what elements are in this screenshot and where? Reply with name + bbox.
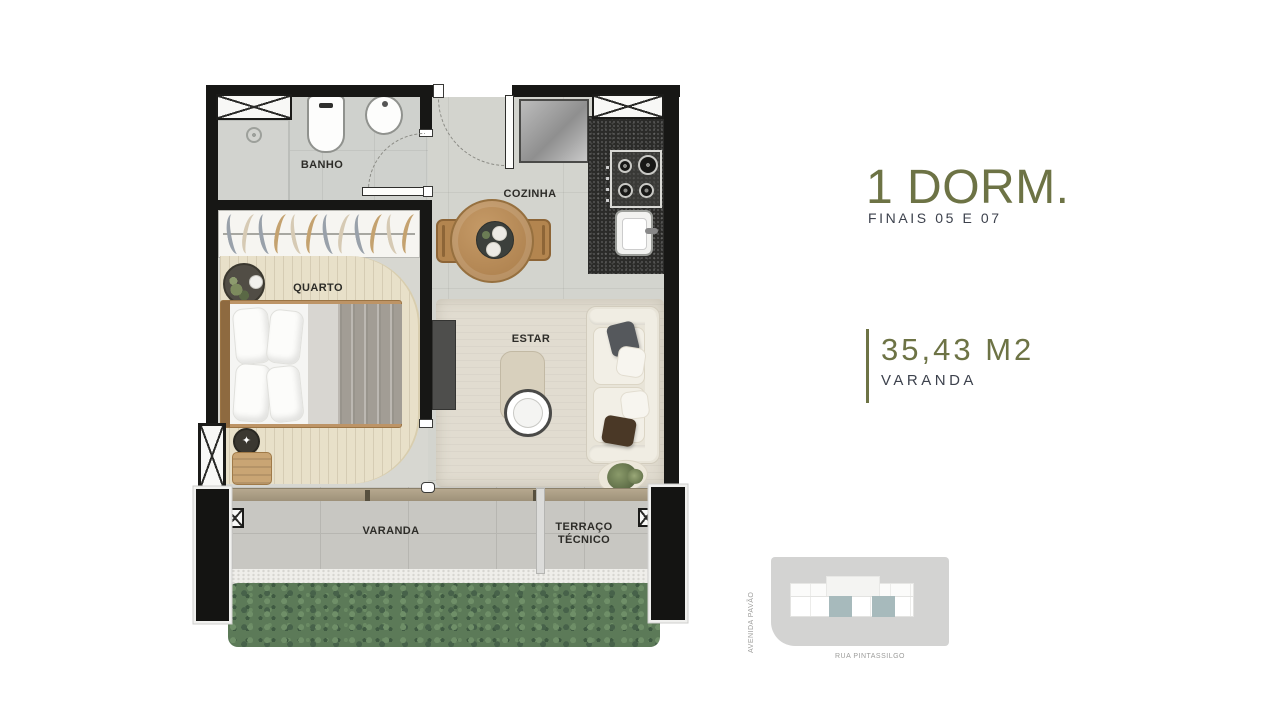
sofa-pillow bbox=[615, 345, 647, 379]
stool-star-icon: ✦ bbox=[242, 435, 251, 447]
site-map: AVENIDA PAVÃO RUA PINTASSILGO bbox=[730, 550, 970, 670]
burner bbox=[638, 155, 658, 175]
pillow bbox=[265, 364, 305, 423]
dining-table bbox=[450, 199, 534, 283]
hedge bbox=[228, 583, 660, 647]
balcony-divider bbox=[536, 488, 545, 574]
room-label-banho: BANHO bbox=[301, 159, 343, 171]
faucet-icon bbox=[382, 101, 388, 107]
door-jamb bbox=[433, 84, 444, 98]
track-roller bbox=[421, 482, 435, 493]
burner bbox=[639, 183, 654, 198]
area-label: VARANDA bbox=[881, 372, 977, 389]
floorplan-page: ✦ bbox=[0, 0, 1280, 720]
hanger bbox=[336, 213, 357, 255]
sink-basin bbox=[622, 218, 647, 250]
bathroom-door bbox=[362, 187, 426, 196]
sofa-pillow bbox=[601, 414, 637, 447]
sink-faucet-icon bbox=[645, 228, 658, 234]
burner bbox=[618, 183, 633, 198]
burner bbox=[618, 159, 632, 173]
side-table bbox=[223, 263, 265, 305]
info-panel: 1 DORM. FINAIS 05 E 07 35,43 M2 VARANDA bbox=[840, 140, 1260, 440]
room-label-cozinha: COZINHA bbox=[504, 188, 557, 200]
info-subtitle: FINAIS 05 E 07 bbox=[868, 210, 1002, 226]
tv-panel bbox=[432, 320, 456, 410]
site-building bbox=[790, 576, 914, 617]
entrance-door bbox=[505, 95, 514, 169]
fridge bbox=[519, 99, 589, 163]
unit-highlight bbox=[829, 596, 852, 617]
unit-highlight bbox=[872, 596, 895, 617]
stove-knobs bbox=[606, 158, 609, 202]
accent-bar bbox=[866, 329, 869, 403]
shower-drain-icon bbox=[246, 127, 262, 143]
sofa bbox=[586, 306, 660, 464]
coffee-table bbox=[504, 389, 552, 437]
wall-cap bbox=[419, 419, 433, 428]
wall-left bbox=[206, 85, 218, 427]
floor-plan: ✦ bbox=[0, 0, 720, 720]
shaft-symbol bbox=[592, 94, 664, 119]
room-label-terraco: TERRAÇO TÉCNICO bbox=[555, 521, 612, 547]
pillow bbox=[265, 308, 304, 365]
bathroom-sink bbox=[365, 95, 403, 135]
sliding-door-track bbox=[226, 488, 656, 501]
room-label-estar: ESTAR bbox=[512, 333, 550, 345]
sofa-pillow bbox=[619, 389, 650, 420]
hanger bbox=[240, 213, 261, 255]
door-hinge bbox=[423, 186, 433, 197]
vanity-bench bbox=[232, 452, 272, 485]
column bbox=[196, 489, 229, 621]
area-value: 35,43 M2 bbox=[881, 332, 1034, 368]
bed bbox=[220, 300, 402, 428]
bathroom-door-swing bbox=[368, 133, 425, 191]
hanger bbox=[304, 213, 325, 255]
wardrobe bbox=[218, 210, 420, 258]
serving-tray bbox=[476, 221, 514, 259]
building-lower-row bbox=[790, 596, 914, 617]
toilet bbox=[307, 95, 345, 153]
street-label-left: AVENIDA PAVÃO bbox=[748, 578, 755, 653]
stool: ✦ bbox=[233, 428, 260, 455]
track-post bbox=[365, 490, 370, 501]
wall-bedroom-living bbox=[420, 200, 432, 427]
blanket bbox=[308, 304, 338, 424]
room-label-quarto: QUARTO bbox=[293, 282, 343, 294]
info-title: 1 DORM. bbox=[866, 160, 1070, 215]
street-label-bottom: RUA PINTASSILGO bbox=[815, 653, 925, 660]
column-cross bbox=[198, 423, 226, 489]
hanger bbox=[400, 213, 421, 255]
wall-right bbox=[664, 85, 679, 487]
column bbox=[651, 487, 685, 620]
kitchen-sink bbox=[615, 210, 653, 256]
toilet-tank bbox=[319, 103, 333, 108]
entrance-door-swing bbox=[438, 98, 506, 167]
building-center-block bbox=[826, 576, 880, 598]
sofa-back bbox=[645, 313, 657, 459]
hanger bbox=[272, 213, 293, 255]
hanger bbox=[368, 213, 389, 255]
shaft-symbol bbox=[216, 94, 292, 120]
headboard bbox=[221, 301, 230, 427]
wall-bathroom-bedroom bbox=[206, 200, 432, 210]
stove bbox=[610, 150, 662, 208]
blanket bbox=[338, 304, 402, 424]
room-label-varanda: VARANDA bbox=[363, 525, 420, 537]
